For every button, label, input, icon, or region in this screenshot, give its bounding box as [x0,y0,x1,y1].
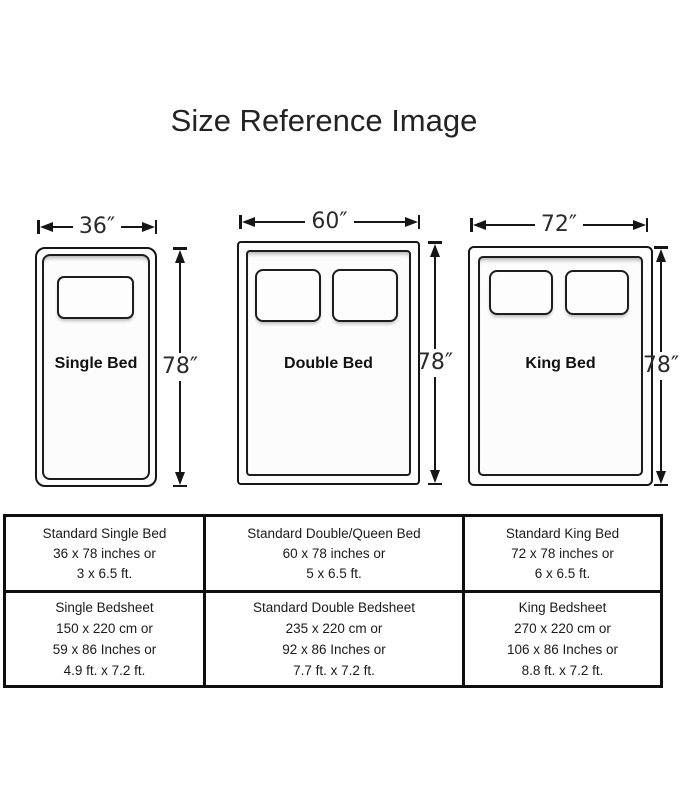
single-bed-height-label: 78″ [162,353,198,381]
page-title: Size Reference Image [0,103,648,139]
single-bed-label: Single Bed [37,355,155,373]
arrow-left-icon [473,220,486,230]
table-cell-line: 3 x 6.5 ft. [8,564,201,584]
arrow-line [583,224,632,227]
arrow-end-tick [646,218,649,232]
arrow-right-icon [633,220,646,230]
arrow-up-icon [656,249,666,262]
king-bed-width-arrow: 72″ [470,213,648,237]
pillow [565,270,629,315]
single-bed-height-arrow: 78″ [168,247,192,487]
table-cell-line: 106 x 86 Inches or [467,639,658,660]
arrow-end-tick [654,484,668,487]
arrow-line [660,262,663,353]
king-bed-label: King Bed [470,355,651,373]
pillow [57,276,134,319]
king-bed-width-label: 72″ [535,214,583,236]
size-table-cell-single-bedsheet: Single Bedsheet 150 x 220 cm or 59 x 86 … [5,592,205,687]
double-bed-diagram: Double Bed [237,241,420,485]
pillow [332,269,398,322]
table-cell-line: 6 x 6.5 ft. [467,564,658,584]
table-cell-line: 235 x 220 cm or [208,618,460,639]
arrow-left-icon [242,217,255,227]
double-bed-width-label: 60″ [305,211,353,233]
size-reference-page: Size Reference Image 36″ Single Bed 78″ … [0,0,683,800]
size-table-cell-double-bed: Standard Double/Queen Bed 60 x 78 inches… [205,516,464,592]
king-bed-height-arrow: 78″ [649,246,673,486]
pillow [489,270,553,315]
table-row-bed-sizes: Standard Single Bed 36 x 78 inches or 3 … [5,516,662,592]
table-row-bedsheet-sizes: Single Bedsheet 150 x 220 cm or 59 x 86 … [5,592,662,687]
arrow-line [660,380,663,471]
table-cell-line: Standard Double Bedsheet [208,597,460,618]
single-bed-width-label: 36″ [73,216,121,238]
arrow-line [179,263,182,354]
arrow-right-icon [405,217,418,227]
table-cell-line: 8.8 ft. x 7.2 ft. [467,660,658,681]
arrow-down-icon [175,472,185,485]
arrow-up-icon [175,250,185,263]
table-cell-line: 270 x 220 cm or [467,618,658,639]
arrow-down-icon [656,471,666,484]
arrow-end-tick [173,485,187,488]
double-bed-height-arrow: 78″ [423,241,447,485]
single-bed-width-arrow: 36″ [37,215,157,239]
table-cell-line: King Bedsheet [467,597,658,618]
arrow-line [121,226,141,229]
arrow-line [255,221,306,224]
table-cell-line: 7.7 ft. x 7.2 ft. [208,660,460,681]
arrow-end-tick [155,220,158,234]
double-bed-label: Double Bed [239,355,418,373]
arrow-line [53,226,73,229]
table-cell-line: 150 x 220 cm or [8,618,201,639]
arrow-line [434,377,437,470]
single-bed-diagram: Single Bed [35,247,157,487]
arrow-end-tick [428,483,442,486]
pillow [255,269,321,322]
king-bed-diagram: King Bed [468,246,653,486]
table-cell-line: 5 x 6.5 ft. [208,564,460,584]
table-cell-line: 92 x 86 Inches or [208,639,460,660]
size-table: Standard Single Bed 36 x 78 inches or 3 … [3,514,663,688]
arrow-right-icon [142,222,155,232]
double-bed-height-label: 78″ [417,349,453,377]
arrow-left-icon [40,222,53,232]
table-cell-line: 36 x 78 inches or [8,544,201,564]
arrow-line [434,257,437,350]
double-bed-width-arrow: 60″ [239,210,420,234]
size-table-cell-single-bed: Standard Single Bed 36 x 78 inches or 3 … [5,516,205,592]
table-cell-line: 60 x 78 inches or [208,544,460,564]
table-cell-line: Standard King Bed [467,524,658,544]
size-table-cell-king-bed: Standard King Bed 72 x 78 inches or 6 x … [464,516,662,592]
table-cell-line: Single Bedsheet [8,597,201,618]
arrow-line [179,381,182,472]
arrow-line [354,221,405,224]
king-bed-height-label: 78″ [643,352,679,380]
arrow-down-icon [430,470,440,483]
table-cell-line: 59 x 86 Inches or [8,639,201,660]
size-table-cell-double-bedsheet: Standard Double Bedsheet 235 x 220 cm or… [205,592,464,687]
size-table-cell-king-bedsheet: King Bedsheet 270 x 220 cm or 106 x 86 I… [464,592,662,687]
table-cell-line: 72 x 78 inches or [467,544,658,564]
arrow-end-tick [418,215,421,229]
arrow-up-icon [430,244,440,257]
table-cell-line: Standard Double/Queen Bed [208,524,460,544]
arrow-line [486,224,535,227]
table-cell-line: Standard Single Bed [8,524,201,544]
table-cell-line: 4.9 ft. x 7.2 ft. [8,660,201,681]
